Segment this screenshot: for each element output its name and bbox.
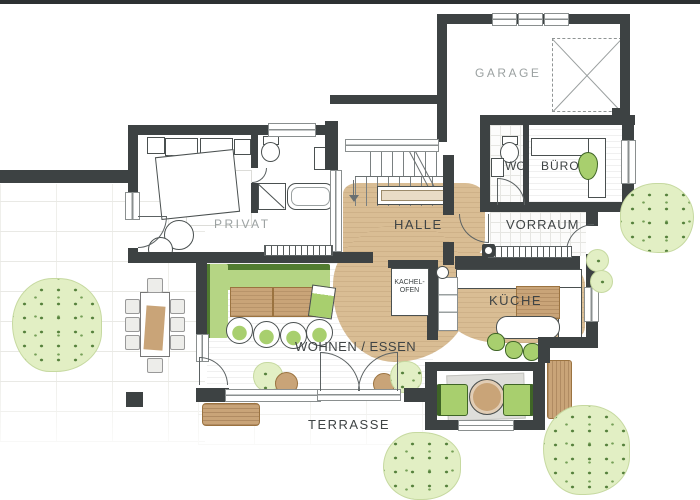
vorraum-coat-rack (488, 246, 572, 258)
coat-rack-end (482, 244, 495, 257)
sitting-round-table (469, 379, 505, 415)
wc-sink (491, 158, 504, 177)
coat-rack-knob (485, 247, 492, 254)
wcbuero-wall-left (480, 115, 490, 212)
garage-label: GARAGE (475, 66, 541, 80)
barrel-chair-2 (253, 321, 280, 348)
outdoor-dining-table (140, 292, 170, 357)
dining-chair-8 (147, 358, 163, 373)
kachelofen-shelves (438, 277, 458, 331)
dining-chair-6 (170, 335, 185, 350)
kueche-stool-2 (505, 341, 523, 359)
bath-partition-a (251, 133, 258, 168)
shower-diagonal (258, 184, 284, 209)
halle-sideboard-top (381, 190, 450, 201)
double-bed (155, 149, 240, 220)
dining-chair-5 (170, 317, 185, 332)
halle-glass-partition (330, 170, 342, 252)
wohnen-window-bottom (225, 389, 321, 402)
radiator-privat (264, 245, 333, 256)
tree-bottom-right (543, 405, 630, 495)
reading-chair (308, 284, 336, 319)
nightstand-right (234, 139, 251, 155)
garage-wall-left (437, 14, 447, 142)
dining-chair-7 (147, 278, 163, 293)
garage-window-1 (492, 13, 517, 26)
kueche-stool-1 (487, 333, 505, 351)
privat-wall-corner-stub (325, 121, 338, 170)
halle-label: HALLE (394, 217, 443, 232)
bath-partition-b (251, 183, 258, 213)
garage-window-3 (544, 13, 569, 26)
barrel-chair-1 (226, 317, 253, 344)
wohnen-label: WOHNEN / ESSEN (295, 339, 416, 354)
shower (258, 183, 286, 210)
stairs-arrow-head (349, 195, 359, 202)
privat-window-top (268, 123, 316, 137)
wohnen-wall-left-a (196, 253, 207, 334)
vorraum-label: VORRAUM (506, 217, 579, 232)
kueche-label: KÜCHE (489, 293, 542, 308)
nightstand-left (147, 137, 165, 154)
dining-chair-3 (125, 335, 140, 350)
halle-vorraum-wall-a (443, 155, 454, 215)
privat-wall-left-a (128, 125, 138, 192)
kachelofen-flue (436, 266, 449, 279)
kachelofen-wall-stub (427, 332, 438, 340)
shrub-entrance-2 (590, 270, 613, 293)
garage-window-2 (518, 13, 543, 26)
buero-label: BÜRO (541, 159, 580, 173)
bathtub (287, 183, 334, 210)
shrub-entrance-1 (586, 249, 609, 272)
privat-label: PRIVAT (214, 217, 271, 231)
entry-wall-top (330, 95, 447, 104)
sitting-opening (458, 420, 514, 431)
dining-chair-2 (125, 317, 140, 332)
stairs-upper-treads (370, 148, 444, 176)
dining-chair-1 (125, 299, 140, 314)
sofa-l-vertical (204, 264, 228, 338)
bathtub-inner (291, 187, 330, 206)
kachelofen-label: KACHEL- OFEN (392, 279, 427, 295)
kachelofen-wall-top (388, 260, 430, 268)
garage-skylight-box (552, 38, 622, 112)
table-runner (143, 305, 165, 350)
entry-window-row (345, 139, 439, 152)
kachelofen-label-line2: OFEN (400, 287, 419, 294)
kachelofen-label-line1: KACHEL- (394, 279, 424, 286)
toilet-bath-bowl (261, 142, 280, 162)
buero-window-right (621, 140, 636, 184)
kueche-table (496, 316, 560, 339)
site-border-top (0, 0, 700, 4)
garden-bench-left (202, 403, 260, 426)
sitting-wall-top (425, 362, 545, 371)
floor-plan: GARAGE PRIVAT (0, 0, 700, 500)
privat-wall-bottom (128, 252, 373, 263)
tree-bottom-center (383, 432, 461, 500)
coffee-table (230, 287, 316, 317)
terrasse-label: TERRASSE (308, 417, 390, 432)
dining-chair-4 (170, 299, 185, 314)
sitting-armchair-right (503, 384, 535, 416)
stairs-mid-line (355, 176, 444, 177)
garden-wall-left (0, 170, 130, 183)
kueche-wall-step (538, 337, 550, 363)
garage-wall-right (620, 14, 630, 114)
terrace-pillar (126, 392, 143, 407)
wc-label: WC (505, 159, 525, 173)
stairs-arrow-shaft (353, 180, 354, 196)
wcbuero-wall-top (480, 115, 635, 125)
tree-left (12, 278, 102, 372)
sitting-armchair-left (436, 384, 468, 416)
halle-vorraum-wall-b (443, 242, 454, 265)
kueche-counter-right (558, 287, 582, 339)
bath-door (252, 168, 267, 183)
tree-right (620, 183, 694, 253)
